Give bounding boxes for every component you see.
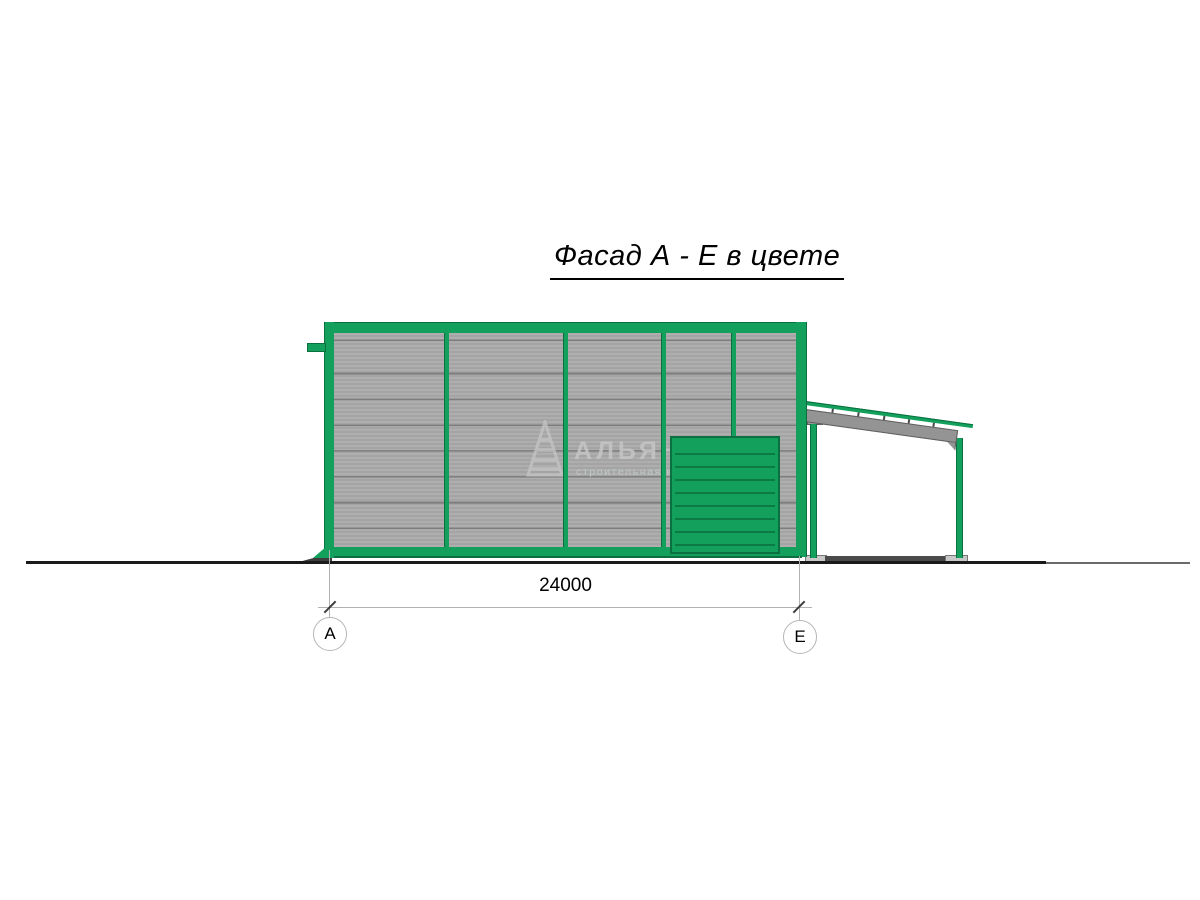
roller-door <box>670 436 780 554</box>
facade-drawing-canvas: Фасад А - Е в цвете АЛЬЯНС строительная … <box>0 0 1200 900</box>
side-canopy <box>798 399 980 482</box>
wall-mullion <box>661 333 666 547</box>
right-corner-column <box>796 322 807 557</box>
wall-mullion <box>563 333 568 547</box>
dimension-line <box>318 607 812 608</box>
wall-mullion-above-door <box>731 333 736 437</box>
drawing-title: Фасад А - Е в цвете <box>550 240 844 280</box>
dimension-value: 24000 <box>528 575 603 597</box>
axis-marker-a-label: А <box>324 624 335 644</box>
axis-marker-e-label: Е <box>794 627 805 647</box>
axis-marker-e: Е <box>783 620 817 654</box>
extension-line-right <box>799 556 800 620</box>
wall-mullion <box>444 333 449 547</box>
axis-marker-a: А <box>313 617 347 651</box>
ground-line <box>26 561 1046 564</box>
roller-door-slats <box>675 442 775 549</box>
gutter-stub <box>307 343 326 352</box>
roof-edge-beam <box>324 322 807 333</box>
left-corner-column <box>324 322 334 551</box>
canopy-beam-end-cut <box>945 441 956 450</box>
ground-line-extension <box>1046 562 1190 564</box>
watermark-pyramid-icon <box>526 420 564 477</box>
